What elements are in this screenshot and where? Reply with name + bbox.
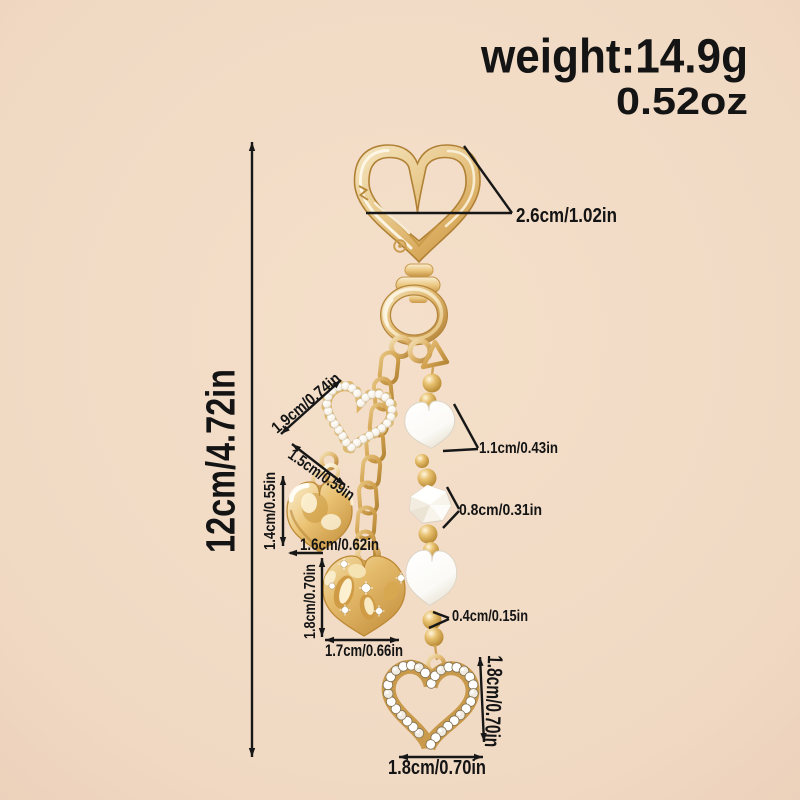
svg-text:1.1cm/0.43in: 1.1cm/0.43in [479,440,558,457]
svg-text:12cm/4.72in: 12cm/4.72in [198,369,244,553]
svg-text:0.8cm/0.31in: 0.8cm/0.31in [459,502,542,519]
svg-text:0.52oz: 0.52oz [616,81,748,123]
svg-text:1.4cm/0.55in: 1.4cm/0.55in [262,472,279,550]
svg-text:weight:14.9g: weight:14.9g [480,31,748,84]
svg-text:1.8cm/0.70in: 1.8cm/0.70in [302,564,319,639]
svg-text:2.6cm/1.02in: 2.6cm/1.02in [516,205,617,227]
svg-text:1.7cm/0.66in: 1.7cm/0.66in [325,642,403,660]
svg-text:1.6cm/0.62in: 1.6cm/0.62in [300,535,379,554]
svg-text:1.8cm/0.70in: 1.8cm/0.70in [480,655,507,748]
svg-text:0.4cm/0.15in: 0.4cm/0.15in [452,608,528,625]
svg-text:1.8cm/0.70in: 1.8cm/0.70in [388,757,486,779]
